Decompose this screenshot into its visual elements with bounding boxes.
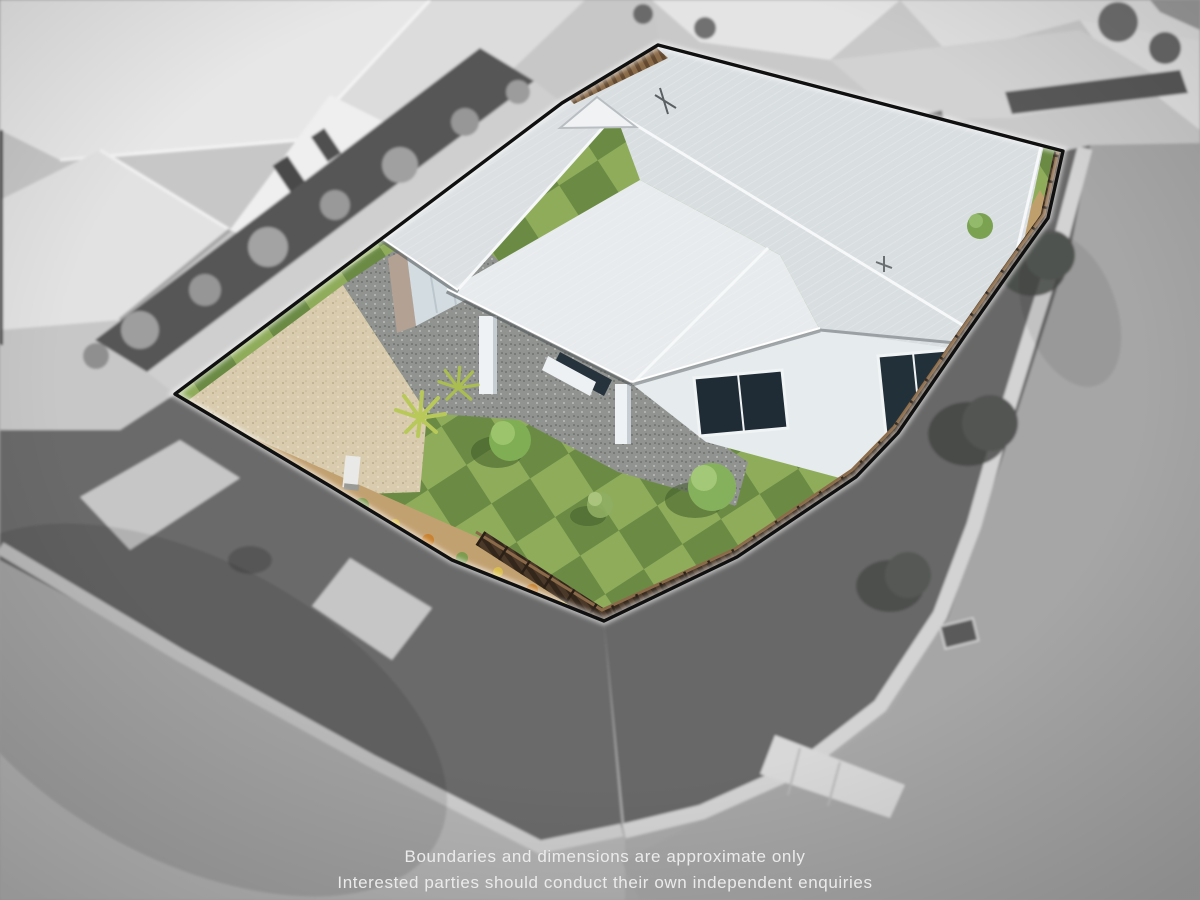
disclaimer-line-1: Boundaries and dimensions are approximat… — [405, 847, 806, 866]
aerial-property-photo: Boundaries and dimensions are approximat… — [0, 0, 1200, 900]
vignette — [0, 0, 1200, 900]
disclaimer-line-2: Interested parties should conduct their … — [337, 873, 872, 892]
